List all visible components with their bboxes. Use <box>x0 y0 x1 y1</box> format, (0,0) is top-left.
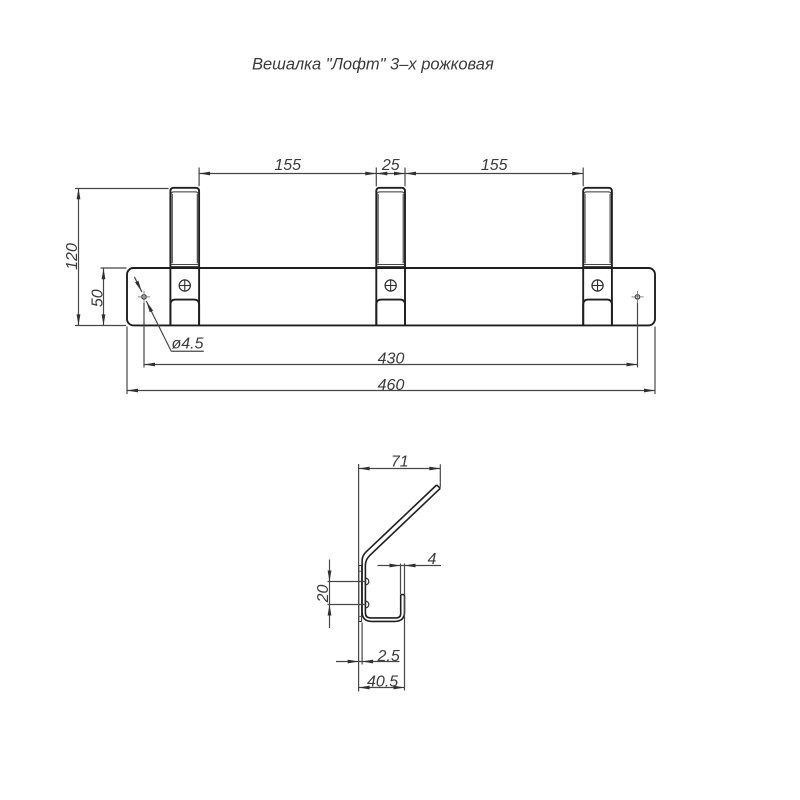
svg-text:50: 50 <box>89 289 106 307</box>
svg-text:120: 120 <box>64 243 81 270</box>
svg-text:20: 20 <box>315 585 332 604</box>
svg-text:ø4.5: ø4.5 <box>172 335 204 352</box>
svg-text:Вешалка "Лофт" 3–х рожковая: Вешалка "Лофт" 3–х рожковая <box>252 56 494 74</box>
svg-text:40.5: 40.5 <box>367 673 398 690</box>
svg-text:71: 71 <box>391 453 409 470</box>
svg-text:2.5: 2.5 <box>376 648 399 665</box>
svg-text:430: 430 <box>378 350 405 367</box>
svg-text:460: 460 <box>378 377 405 394</box>
svg-text:155: 155 <box>481 157 508 174</box>
svg-text:25: 25 <box>381 157 400 174</box>
svg-text:155: 155 <box>274 157 301 174</box>
svg-text:4: 4 <box>428 551 437 568</box>
